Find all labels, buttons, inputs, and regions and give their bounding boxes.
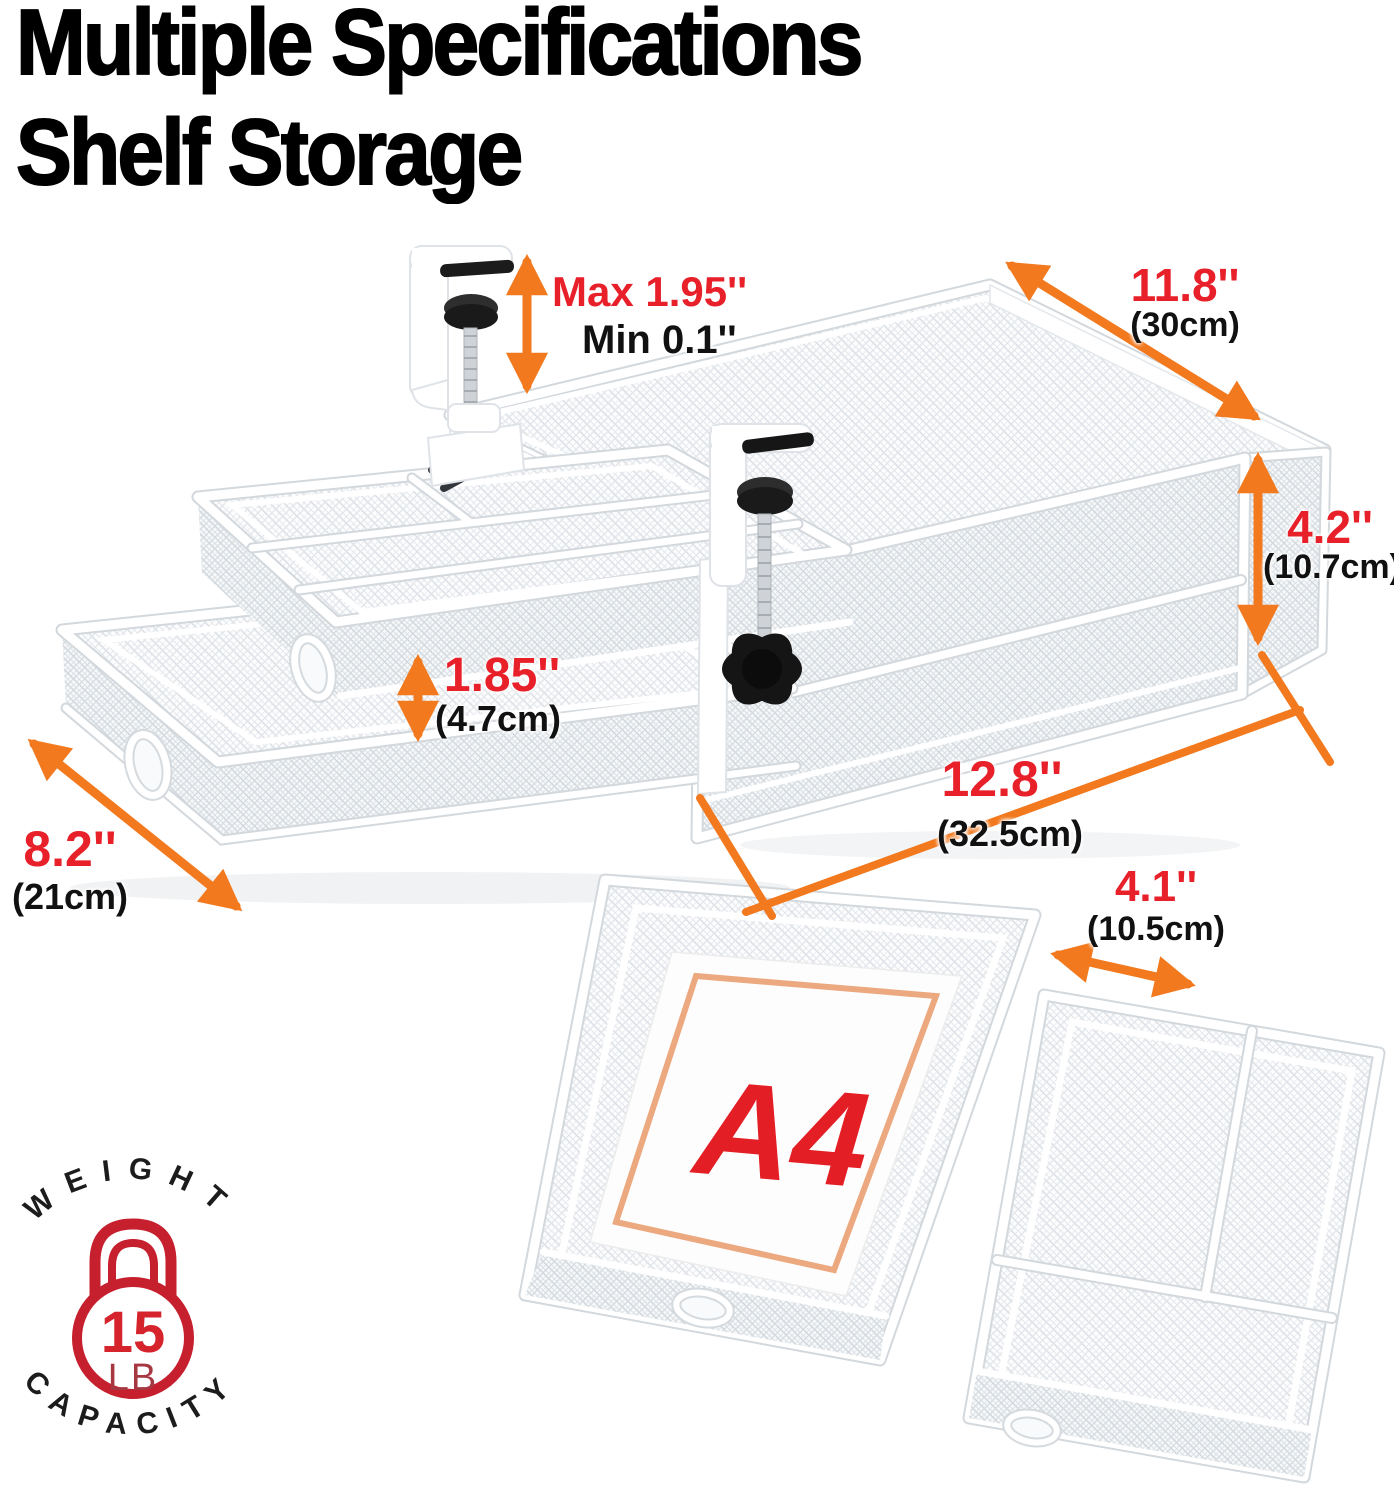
clamp-screw	[758, 514, 771, 646]
shelf-width-inches-label: 12.8''	[941, 750, 1062, 808]
page-title: Multiple Specifications Shelf Storage	[16, 0, 861, 207]
badge-value: 15	[101, 1300, 166, 1365]
a4-label: A4	[687, 1051, 875, 1217]
left-clamp	[410, 246, 524, 486]
compartment-width-inches-label: 4.1''	[1115, 862, 1197, 912]
a4-drawer: A4	[525, 880, 1035, 1360]
product-infographic: A4 WEIGHT CAPACITY	[0, 0, 1394, 1500]
clamp-opening-max-label: Max 1.95''	[552, 268, 747, 316]
shelf-depth-metric-label: (30cm)	[1130, 306, 1240, 345]
compartment-width-metric-label: (10.5cm)	[1087, 910, 1225, 949]
compartment-drawer	[969, 995, 1379, 1477]
clamp-opening-min-label: Min 0.1''	[582, 318, 737, 363]
drawer-depth-inches-label: 8.2''	[23, 820, 116, 878]
shelf-width-metric-label: (32.5cm)	[937, 813, 1083, 855]
organizer-height-metric-label: (4.7cm)	[435, 698, 561, 740]
product-illustration: A4 WEIGHT CAPACITY	[0, 0, 1394, 1500]
title-line-1: Multiple Specifications	[16, 0, 861, 98]
weight-capacity-badge: WEIGHT CAPACITY 15 LB	[18, 1152, 245, 1442]
shelf-depth-inches-label: 11.8''	[1131, 258, 1240, 312]
organizer-height-inches-label: 1.85''	[444, 648, 560, 703]
badge-top-text: WEIGHT	[18, 1152, 244, 1227]
box-height-inches-label: 4.2''	[1287, 500, 1373, 554]
badge-unit: LB	[108, 1357, 158, 1399]
box-height-metric-label: (10.7cm)	[1263, 548, 1394, 587]
title-line-2: Shelf Storage	[16, 98, 861, 208]
compartment-width-arrow	[1058, 955, 1188, 984]
compartment-drawer-handle	[1005, 1410, 1059, 1446]
drawer-depth-metric-label: (21cm)	[12, 876, 128, 918]
